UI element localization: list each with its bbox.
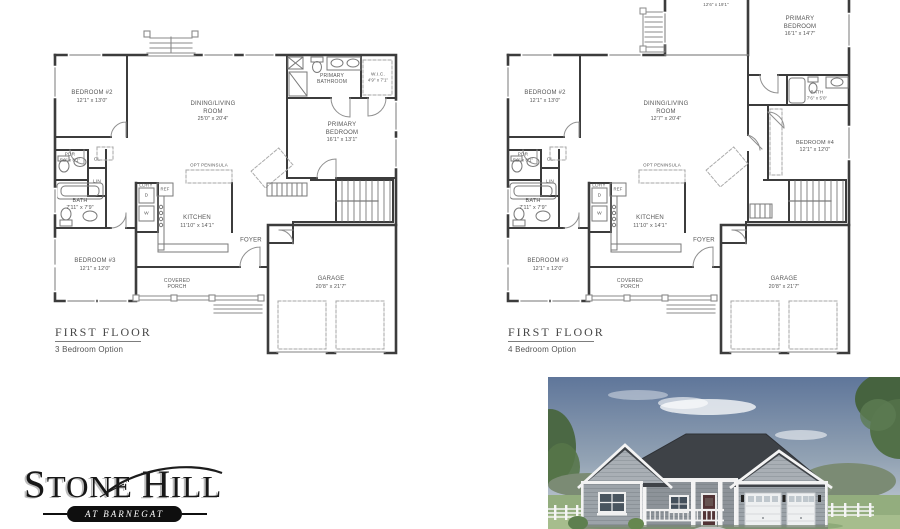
opt-peninsula-label: OPT PENINSULA <box>643 163 681 168</box>
room-label-bedroom2: BEDROOM #2 12'1" x 13'0" <box>524 90 565 104</box>
washer-label: W <box>144 212 149 217</box>
fridge-label: REF <box>614 187 623 192</box>
closet-label: CL <box>94 158 101 163</box>
room-label-dining: DINING/LIVING ROOM 25'0" x 20'4" <box>182 101 244 123</box>
room-label-laundry: LDRY <box>592 184 606 189</box>
room-label-covered-porch: COVERED PORCH <box>157 278 197 291</box>
room-label-pdr: PDR 5'0" x 6'1" <box>60 151 80 162</box>
room-label-pdr: PDR 5'0" x 6'1" <box>513 151 533 162</box>
room-label-dining: DINING/LIVING ROOM 12'7" x 20'4" <box>635 101 697 123</box>
plan-b-title: FIRST FLOOR 4 Bedroom Option <box>508 325 605 354</box>
washer-label: W <box>597 212 602 217</box>
room-label-kitchen: KITCHEN 11'10" x 14'1" <box>633 215 667 229</box>
garage-door <box>745 493 781 527</box>
carriage-lamp <box>783 495 786 502</box>
room-label-foyer: FOYER <box>693 237 715 245</box>
dryer-label: D <box>145 194 149 199</box>
linen-label: LIN <box>93 180 101 185</box>
room-label-primary-bedroom: PRIMARY BEDROOM 16'1" x 13'1" <box>317 122 367 144</box>
room-label-covered-porch: COVERED PORCH <box>610 278 650 291</box>
logo-word-stone: STONE <box>24 462 133 507</box>
house-rendering <box>548 377 900 529</box>
room-label-primary-bathroom: PRIMARY BATHROOM <box>311 73 353 86</box>
fridge-label: REF <box>161 187 170 192</box>
logo-rule-right <box>182 513 207 516</box>
title-rule <box>508 341 594 342</box>
logo-tagline-badge: AT BARNEGAT <box>67 506 182 522</box>
room-label-kitchen: KITCHEN 11'10" x 14'1" <box>180 215 214 229</box>
house-rendering-illustration <box>548 377 900 529</box>
room-label-bedroom3: BEDROOM #3 12'1" x 12'0" <box>74 258 115 272</box>
room-label-bath: BATH 7'11" x 7'9" <box>519 198 546 212</box>
garage-door <box>787 493 815 527</box>
room-label-garage: GARAGE 20'8" x 21'7" <box>316 276 347 290</box>
carriage-lamp <box>818 495 821 502</box>
closet-label: CL <box>547 158 554 163</box>
linen-label: LIN <box>546 180 554 185</box>
room-label-bath: BATH 7'11" x 7'9" <box>66 198 93 212</box>
logo-wordmark: STONE HILL <box>24 462 222 507</box>
title-rule <box>55 341 141 342</box>
room-label-foyer: FOYER <box>240 237 262 245</box>
room-label-bedroom2: BEDROOM #2 12'1" x 13'0" <box>71 90 112 104</box>
room-label-primary-bedroom: PRIMARY BEDROOM 16'1" x 14'7" <box>775 16 825 38</box>
room-label-laundry: LDRY <box>139 184 153 189</box>
carriage-lamp <box>741 495 744 502</box>
stone-hill-logo: STONE HILL AT BARNEGAT <box>22 452 237 528</box>
room-label-sunroom: SUNROOM 12'6" x 19'1" <box>702 0 730 8</box>
room-label-primary-bath: BATH 7'6" x 5'0" <box>807 89 827 100</box>
logo-word-hill: HILL <box>142 462 222 507</box>
room-label-bedroom3: BEDROOM #3 12'1" x 12'0" <box>527 258 568 272</box>
plan-a-title: FIRST FLOOR 3 Bedroom Option <box>55 325 152 354</box>
room-label-garage: GARAGE 20'8" x 21'7" <box>769 276 800 290</box>
opt-peninsula-label: OPT PENINSULA <box>190 163 228 168</box>
dryer-label: D <box>598 194 602 199</box>
room-label-wic: W.I.C. 4'9" x 7'1" <box>368 71 388 82</box>
flyer-page: BEDROOM #2 12'1" x 13'0" DINING/LIVING R… <box>0 0 900 529</box>
logo-rule-left <box>43 513 67 516</box>
room-label-bedroom4: BEDROOM #4 12'1" x 12'0" <box>796 140 834 154</box>
